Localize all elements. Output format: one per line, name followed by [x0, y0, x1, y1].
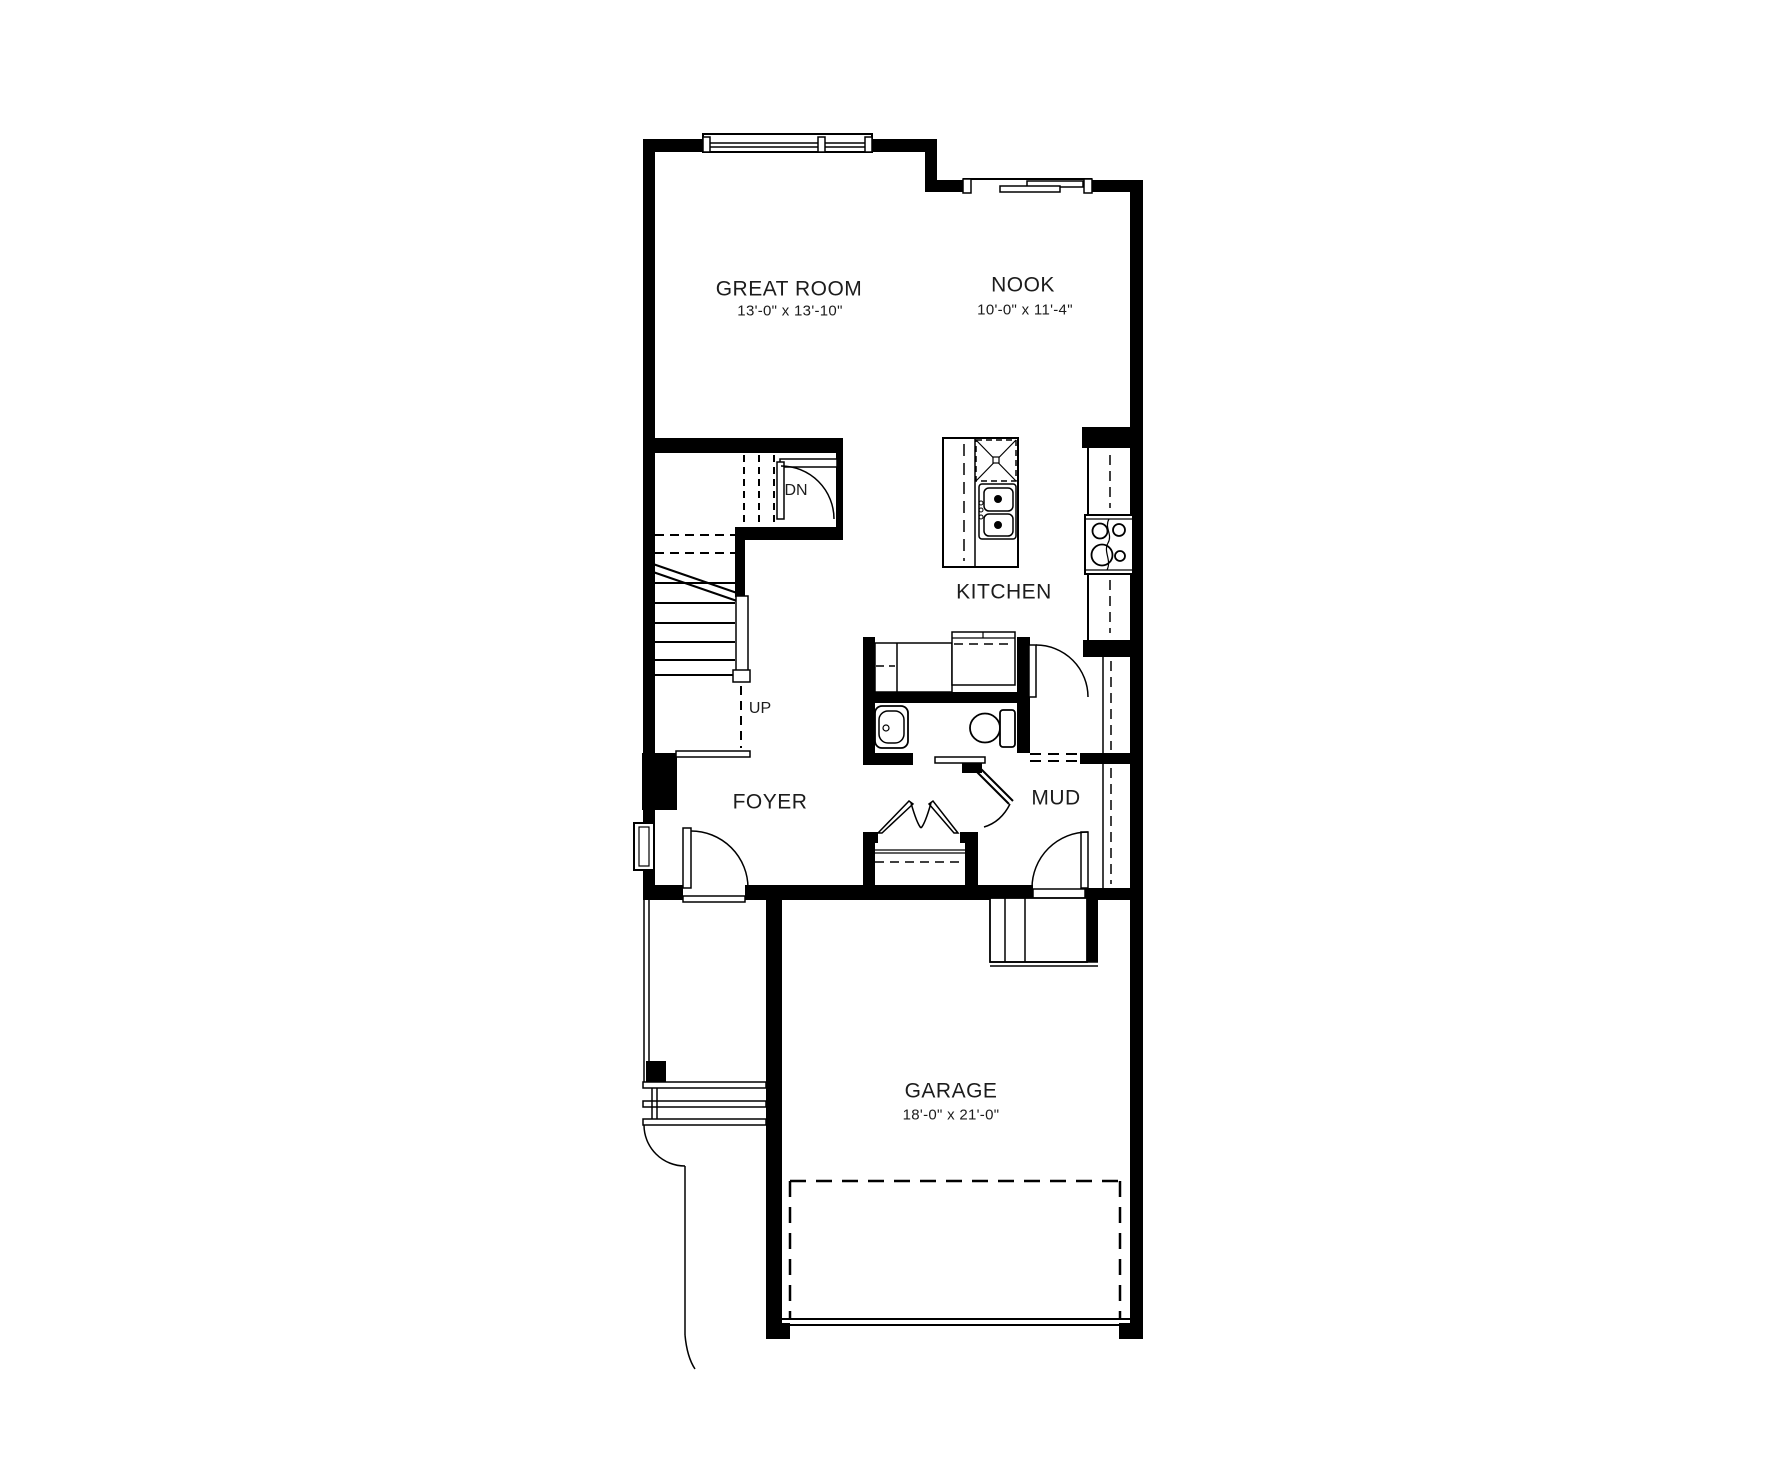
- front-porch: [643, 900, 766, 1125]
- double-sink: [979, 484, 1016, 539]
- garage-dims: 18'-0" x 21'-0": [903, 1108, 1000, 1123]
- nook-dims: 10'-0" x 11'-4": [977, 303, 1073, 318]
- mud-garage-door: [1032, 832, 1088, 899]
- front-door: [683, 828, 748, 902]
- garage-entry-steps: [990, 898, 1098, 966]
- garage-ceiling-dashed-outline: [790, 1181, 1120, 1319]
- kitchen-hall-door: [1029, 645, 1088, 697]
- main-stairs-up: [653, 535, 741, 748]
- mud-label: MUD: [1031, 788, 1080, 809]
- stairs-up-label: UP: [749, 701, 771, 717]
- floor-plan-drawing: [0, 0, 1780, 1480]
- range-cooktop: [1085, 515, 1133, 574]
- closet-bifold-doors: [878, 801, 958, 833]
- great-room-label: GREAT ROOM: [716, 279, 863, 300]
- basement-stairs-dn: [744, 455, 774, 525]
- mud-bench: [875, 632, 1015, 692]
- great-room-window: [703, 134, 872, 152]
- interior-walls: [643, 427, 1134, 962]
- foyer-label: FOYER: [733, 792, 808, 813]
- garage-door: [782, 1319, 1130, 1325]
- great-room-dims: 13'-0" x 13'-10": [737, 304, 842, 319]
- kitchen-label: KITCHEN: [956, 582, 1052, 603]
- nook-label: NOOK: [991, 275, 1055, 296]
- nook-sliding-window: [963, 179, 1092, 193]
- toilet: [970, 710, 1015, 747]
- foyer-sidelight-window: [634, 823, 654, 870]
- floor-plan-page: GREAT ROOM 13'-0" x 13'-10" NOOK 10'-0" …: [0, 0, 1780, 1480]
- stair-railing: [676, 596, 750, 757]
- porch-post: [646, 1061, 666, 1082]
- mud-cased-opening: [1030, 754, 1080, 761]
- stairs-dn-label: DN: [784, 483, 807, 499]
- vanity-sink: [875, 706, 908, 748]
- coat-closet: [875, 850, 965, 862]
- walkway: [644, 1125, 695, 1369]
- garage-label: GARAGE: [905, 1081, 998, 1102]
